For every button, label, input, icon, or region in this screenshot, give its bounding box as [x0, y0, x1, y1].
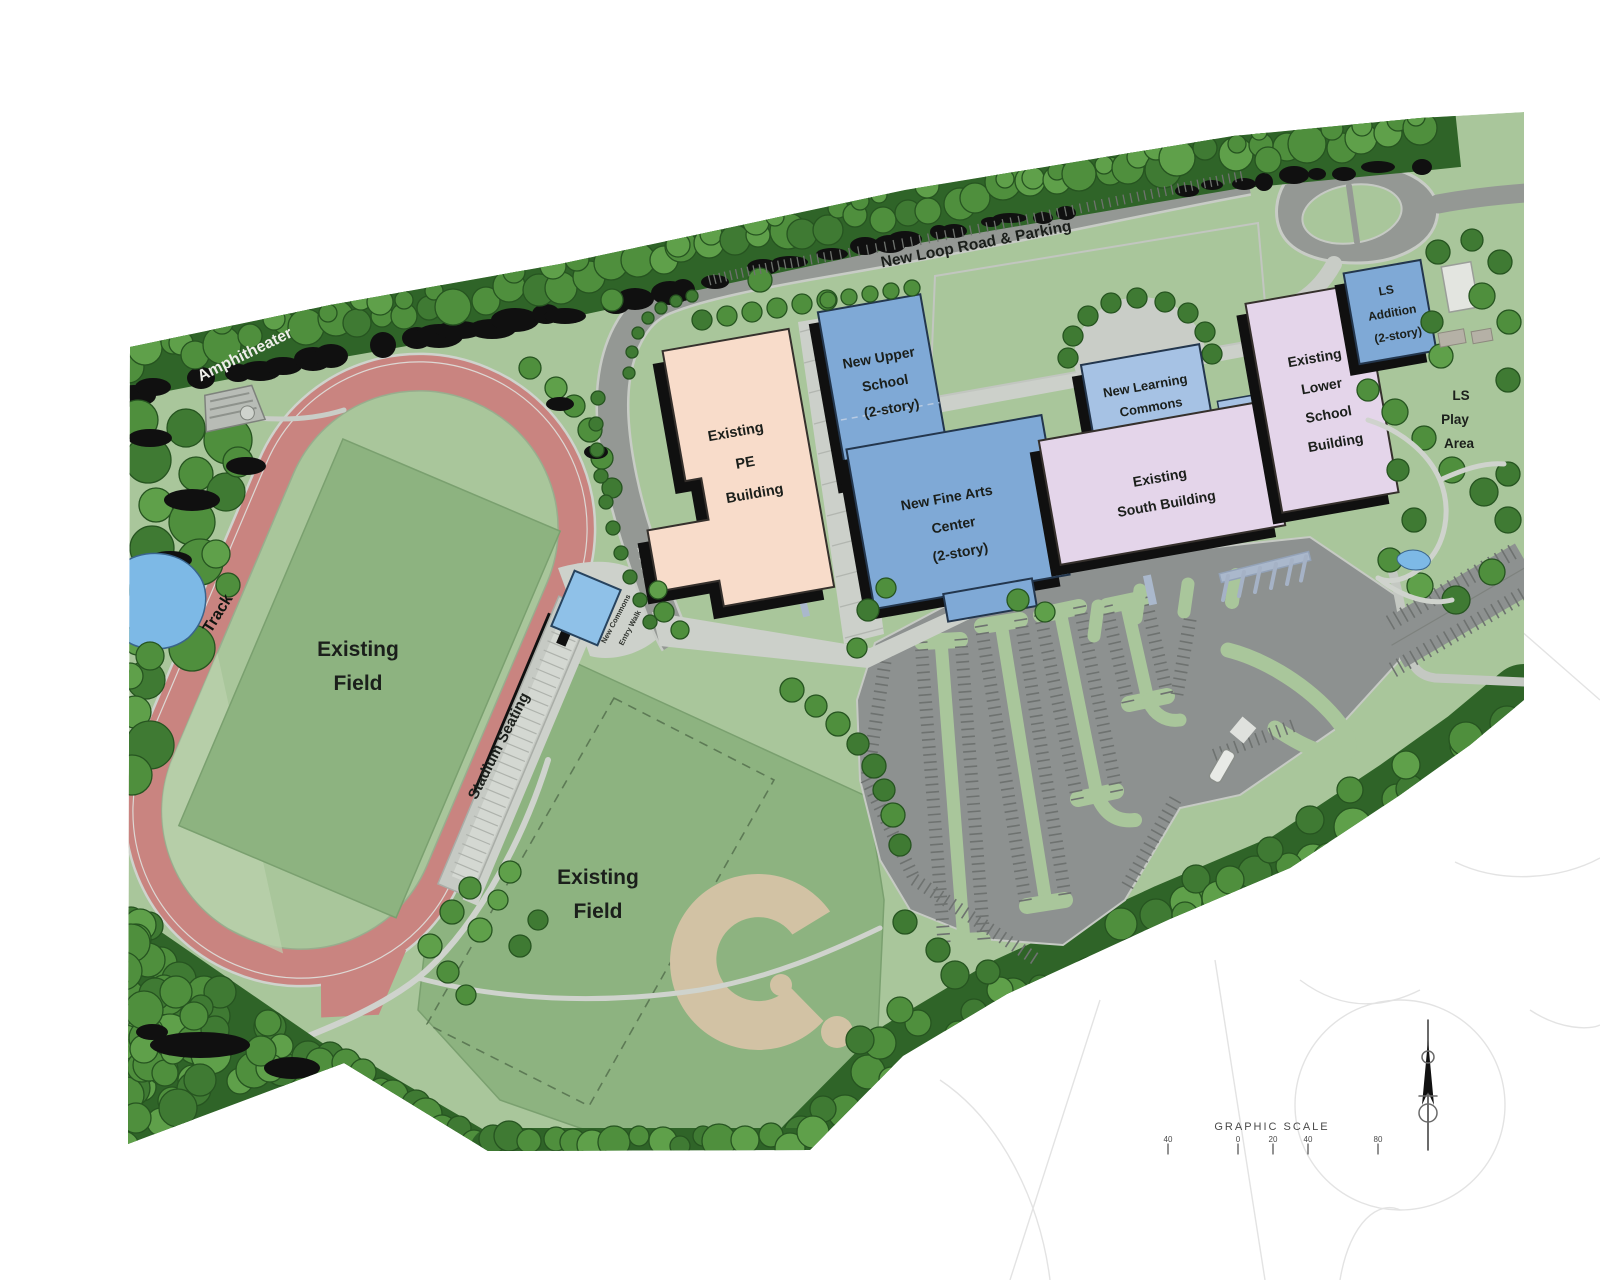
svg-text:GRAPHIC SCALE: GRAPHIC SCALE — [1214, 1121, 1329, 1133]
svg-text:Area: Area — [1444, 436, 1475, 451]
svg-text:Field: Field — [333, 672, 382, 695]
svg-text:Existing: Existing — [317, 638, 399, 661]
svg-text:PE: PE — [734, 454, 756, 473]
svg-text:LS: LS — [1377, 282, 1395, 298]
svg-text:80: 80 — [1374, 1135, 1383, 1144]
svg-text:40: 40 — [1304, 1135, 1313, 1144]
svg-text:0: 0 — [1236, 1135, 1241, 1144]
svg-text:20: 20 — [1269, 1135, 1278, 1144]
svg-text:Field: Field — [573, 900, 622, 923]
svg-text:LS: LS — [1452, 388, 1469, 403]
svg-text:Play: Play — [1441, 412, 1469, 427]
svg-text:Existing: Existing — [557, 866, 639, 889]
svg-text:40: 40 — [1164, 1135, 1173, 1144]
